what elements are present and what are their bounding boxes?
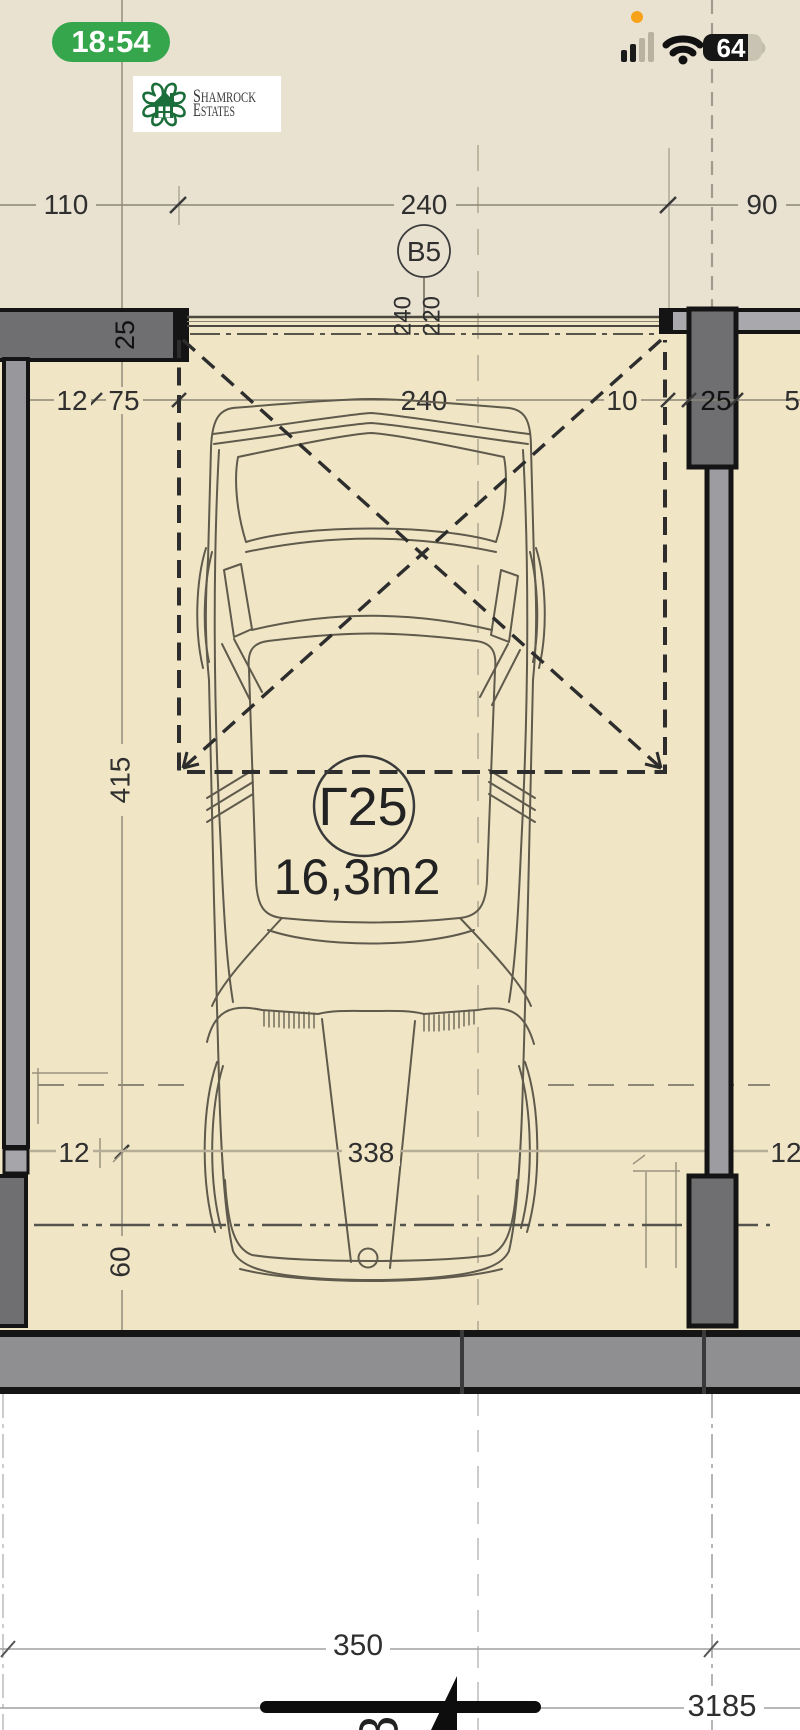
svg-text:25: 25 <box>110 320 140 350</box>
svg-text:64: 64 <box>717 33 746 63</box>
svg-text:12: 12 <box>58 1137 89 1168</box>
svg-text:10: 10 <box>606 385 637 416</box>
svg-text:25: 25 <box>700 385 731 416</box>
svg-text:ESTATES: ESTATES <box>193 100 235 121</box>
svg-text:16,3m2: 16,3m2 <box>274 849 441 905</box>
svg-text:338: 338 <box>348 1137 395 1168</box>
svg-text:75: 75 <box>108 385 139 416</box>
svg-text:240: 240 <box>401 189 448 220</box>
svg-text:3185: 3185 <box>688 1688 757 1723</box>
svg-text:50: 50 <box>784 385 800 416</box>
svg-text:240: 240 <box>389 296 416 336</box>
svg-text:8: 8 <box>348 1716 410 1730</box>
svg-text:350: 350 <box>333 1629 383 1662</box>
svg-text:Г25: Г25 <box>318 777 407 837</box>
svg-text:220: 220 <box>418 296 445 336</box>
svg-text:B5: B5 <box>407 236 441 267</box>
svg-text:60: 60 <box>104 1246 135 1277</box>
svg-text:12: 12 <box>770 1137 800 1168</box>
svg-text:12: 12 <box>56 385 87 416</box>
svg-text:415: 415 <box>104 757 135 804</box>
svg-text:110: 110 <box>44 189 89 220</box>
svg-text:90: 90 <box>746 189 777 220</box>
